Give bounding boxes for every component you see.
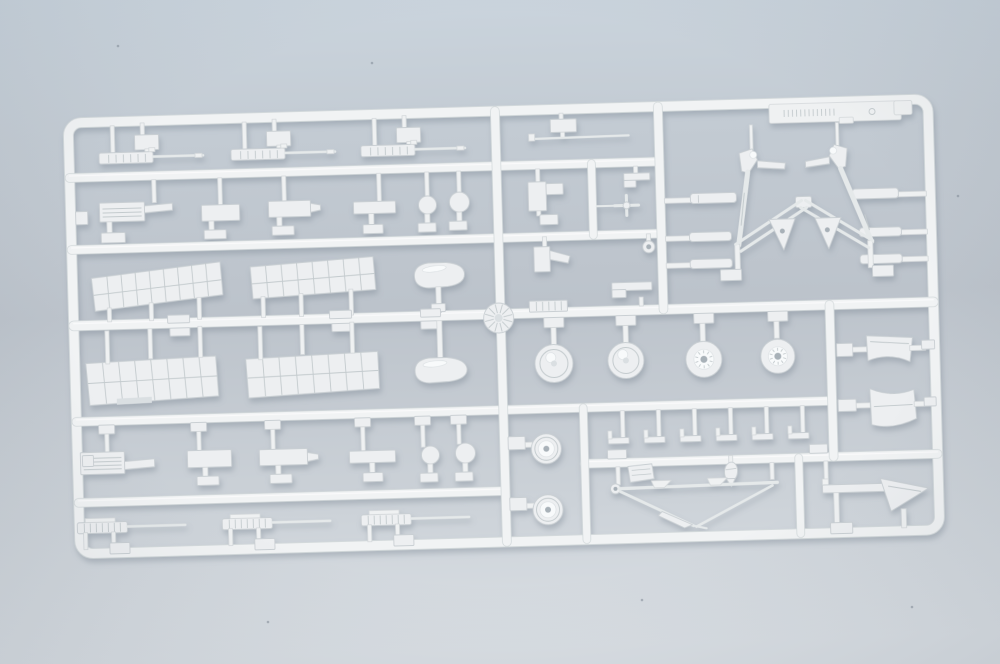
vignette (0, 0, 1000, 664)
photo (0, 0, 1000, 664)
photo-svg (0, 0, 1000, 664)
